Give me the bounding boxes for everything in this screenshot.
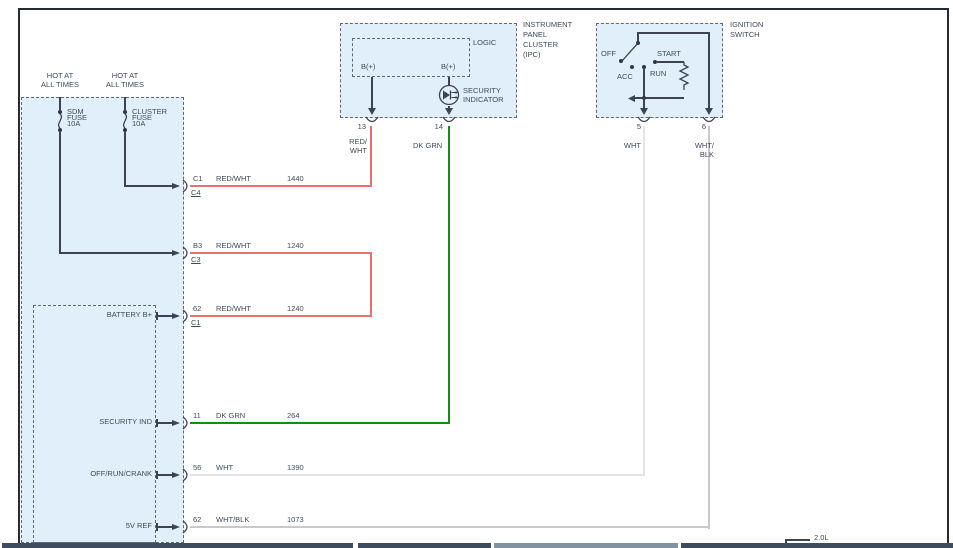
row3-pin: 62	[193, 305, 201, 314]
ipc-logic-label: LOGIC	[473, 39, 496, 48]
connector-right-icon-row4	[172, 415, 192, 431]
ign-right-line	[708, 32, 710, 111]
wire-redwht-1440-up	[370, 126, 372, 187]
row6-pin: 62	[193, 516, 201, 525]
wire-wht-1390	[190, 474, 645, 476]
ipc-security-indicator-label: SECURITY INDICATOR	[463, 87, 504, 104]
ign-acc-dot	[630, 65, 634, 69]
wire-whtblk-1073-up	[708, 126, 710, 529]
arrow-down-icon-pin13	[368, 108, 376, 115]
row2-wire-color: RED/WHT	[216, 242, 251, 251]
ign-off-dot	[619, 59, 623, 63]
wire-sdm-down	[59, 131, 61, 253]
frame-right	[947, 8, 949, 543]
wire-redwht-1440	[190, 185, 372, 187]
row3-circuit: 1240	[287, 305, 304, 314]
wire-whtblk-1073	[190, 526, 710, 528]
frame-left	[18, 8, 20, 543]
bottom-bar-segment-2	[358, 543, 491, 548]
row6-wire-color: WHT/BLK	[216, 516, 249, 525]
connector-down-icon-pin14	[441, 117, 457, 125]
wire6-color-label: WHT/ BLK	[686, 142, 714, 159]
connector-down-icon-pin13	[364, 117, 380, 125]
ipc-bplus-right-label: B(+)	[441, 63, 455, 72]
row6-circuit: 1073	[287, 516, 304, 525]
hot-at-all-times-label-2: HOT AT ALL TIMES	[95, 72, 155, 89]
wire-cluster-down	[124, 131, 126, 186]
row4-circuit: 264	[287, 412, 300, 421]
ipc-bplus-left-label: B(+)	[361, 63, 375, 72]
ign-run-down-line	[643, 68, 645, 98]
ipc-pin14-number: 14	[429, 123, 443, 132]
ign-pin5-number: 5	[629, 123, 641, 132]
row5-pin: 56	[193, 464, 201, 473]
ign-run-label: RUN	[650, 70, 666, 79]
row1-connector: C4	[191, 189, 201, 198]
row5-circuit: 1390	[287, 464, 304, 473]
row1-circuit: 1440	[287, 175, 304, 184]
row4-pin: 11	[193, 412, 201, 421]
row4-label: SECURITY IND	[62, 418, 152, 427]
row5-label: OFF/RUN/CRANK	[52, 470, 152, 479]
fuse-label-sdm: SDM FUSE 10A	[67, 109, 87, 127]
connector-right-icon-row5	[172, 467, 192, 483]
row2-circuit: 1240	[287, 242, 304, 251]
ignition-switch-title: IGNITION SWITCH	[730, 20, 763, 40]
wire-redwht-1240-a	[190, 252, 372, 254]
bottom-bar-segment-1	[2, 543, 353, 548]
bottom-bar-segment-4	[681, 543, 953, 548]
row5-wire-color: WHT	[216, 464, 233, 473]
ipc-title: INSTRUMENT PANEL CLUSTER (IPC)	[523, 20, 572, 60]
engine-size-label: 2.0L	[814, 534, 829, 543]
fuse-label-cluster: CLUSTER FUSE 10A	[132, 109, 167, 127]
bottom-bar-segment-3	[494, 543, 678, 548]
engine-tag-leader	[785, 539, 810, 541]
arrow-down-icon-pin5	[640, 108, 648, 115]
ipc-bplus-left-line	[371, 77, 373, 110]
wire-dkgrn-264-up	[448, 126, 450, 424]
wire-redwht-1240-down	[370, 252, 372, 317]
wire-sdm-right	[59, 252, 177, 254]
arrow-down-icon-pin14	[445, 108, 453, 115]
wire-wht-1390-up	[643, 126, 645, 476]
hot-at-all-times-label-1: HOT AT ALL TIMES	[30, 72, 90, 89]
row6-label: 5V REF	[62, 522, 152, 531]
security-indicator-led-icon	[437, 83, 461, 107]
ign-junction-line	[643, 97, 684, 99]
ign-acc-label: ACC	[617, 73, 633, 82]
ign-start-label: START	[657, 50, 681, 59]
ign-off-label: OFF	[601, 50, 616, 59]
arrow-down-icon-pin6	[705, 108, 713, 115]
row2-pin: B3	[193, 242, 202, 251]
resistor-icon	[679, 62, 689, 90]
wire5-color-label: WHT	[613, 142, 641, 151]
wire-redwht-1240-b	[190, 315, 372, 317]
connector-right-icon-row3	[172, 308, 192, 324]
row3-wire-color: RED/WHT	[216, 305, 251, 314]
wire-dkgrn-264	[190, 422, 450, 424]
row1-pin: C1	[193, 175, 203, 184]
connector-right-icon-row2	[172, 245, 192, 261]
ign-top-line	[637, 32, 709, 34]
row4-wire-color: DK GRN	[216, 412, 245, 421]
wiring-diagram-canvas: HOT AT ALL TIMES HOT AT ALL TIMES SDM FU…	[0, 0, 953, 548]
wire-cluster-right	[124, 185, 177, 187]
row1-wire-color: RED/WHT	[216, 175, 251, 184]
frame-top	[18, 8, 949, 10]
row2-connector: C3	[191, 256, 201, 265]
ign-pin6-number: 6	[694, 123, 706, 132]
ipc-pin13-number: 13	[352, 123, 366, 132]
wire14-color-label: DK GRN	[413, 142, 442, 151]
connector-right-icon-row1	[172, 178, 192, 194]
connector-right-icon-row6	[172, 519, 192, 535]
wire13-color-label: RED/ WHT	[337, 138, 367, 155]
row3-label: BATTERY B+	[62, 311, 152, 320]
row3-connector: C1	[191, 319, 201, 328]
